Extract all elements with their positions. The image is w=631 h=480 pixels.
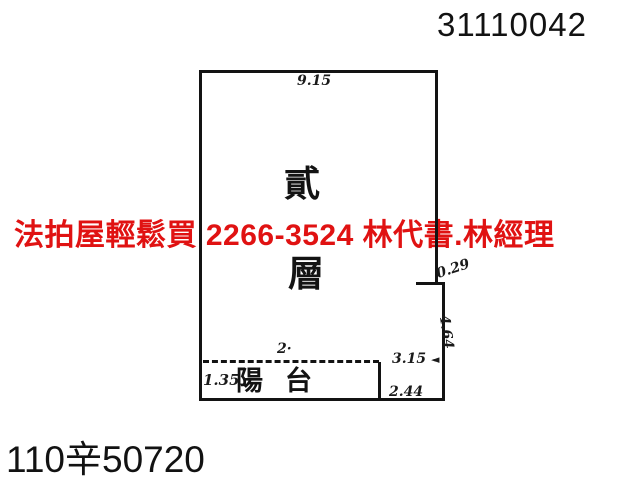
room-label-floor-char1: 貳 [284, 166, 320, 202]
balcony-label: 陽台 [236, 367, 334, 397]
dimension-right-step: 0.29 [435, 257, 472, 281]
balcony-divider-wall [378, 362, 381, 401]
case-number: 110辛50720 [6, 429, 205, 480]
dimension-balcony-left-height: 1.35 [203, 373, 240, 388]
document-number: 31110042 [437, 6, 587, 44]
room-label-floor-char2: 層 [288, 256, 324, 292]
wall-right-step [416, 282, 445, 285]
dimension-inner-width: 3.15 ◄ [392, 352, 439, 366]
advert-overlay-text: 法拍屋輕鬆買 2266-3524 林代書.林經理 [14, 219, 624, 252]
dimension-inner-width-value: 3.15 [392, 351, 426, 367]
dimension-right-lower-height: 4.64 [437, 314, 456, 350]
wall-left [199, 70, 202, 401]
dimension-balcony-top: 2· [273, 342, 296, 356]
wall-right-upper [435, 70, 438, 284]
dimension-top-width: 9.15 [297, 74, 331, 88]
dimension-balcony-right-height: 2.44 [389, 385, 423, 399]
scanned-floorplan-page: 31110042 法拍屋輕鬆買 2266-3524 林代書.林經理 貳 層 陽台… [0, 0, 631, 480]
balcony-boundary-dashed-line [203, 360, 379, 363]
dimension-arrow-icon: ◄ [431, 353, 439, 366]
